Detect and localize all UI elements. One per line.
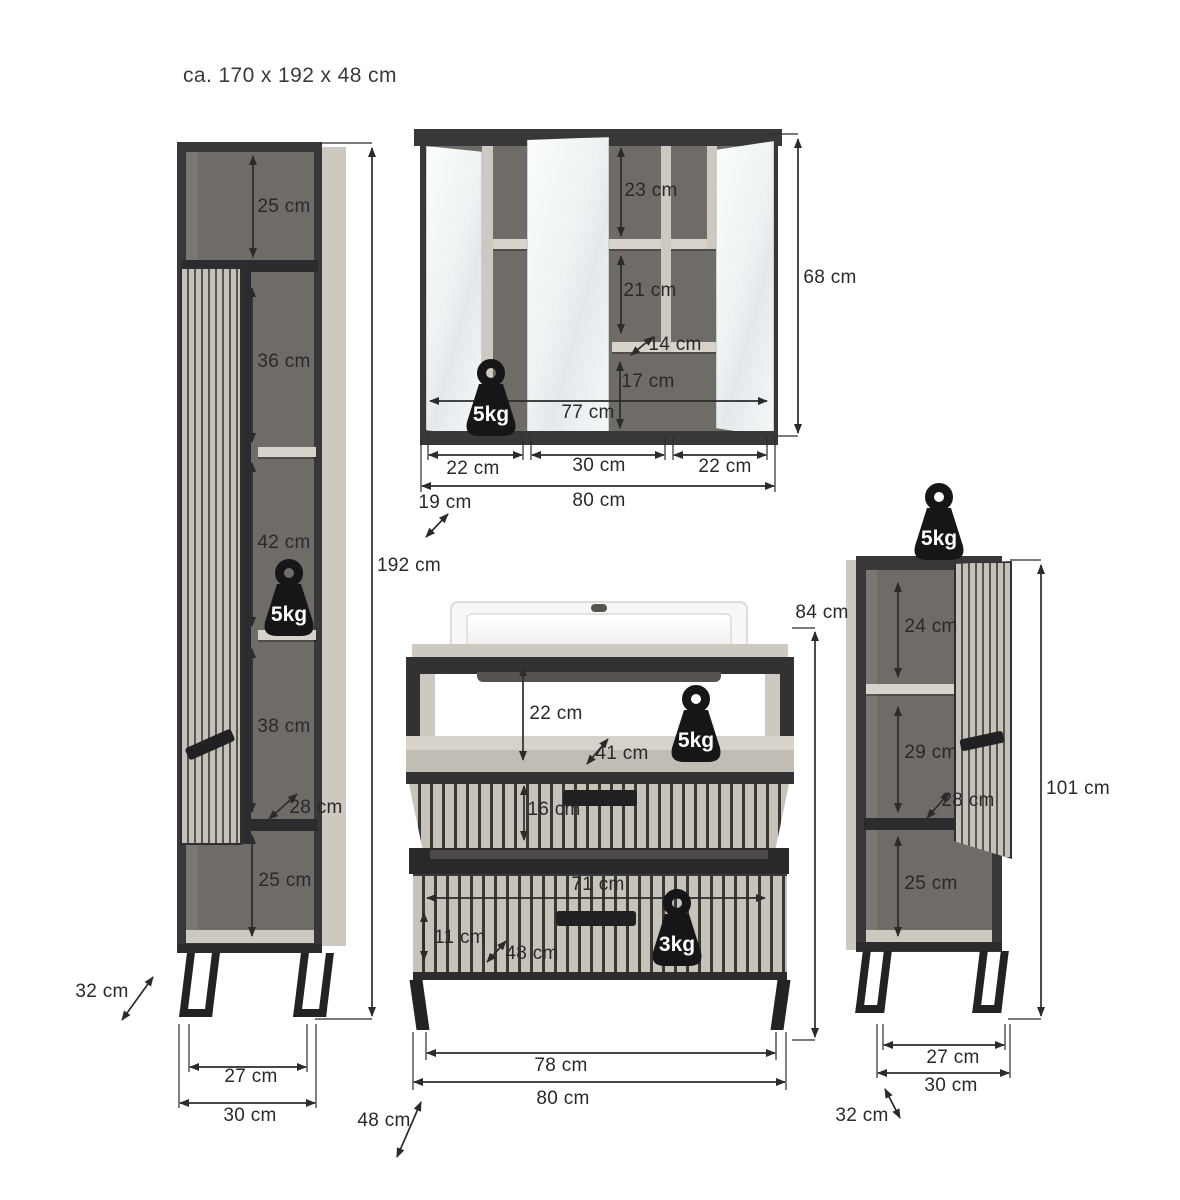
dim-label-mirror-door-left: 22 cm [446,458,499,480]
weight-badge-label: 5kg [921,527,957,550]
weight-ring-icon [668,894,687,913]
dim-label-vanity-drawer2-height: 11 cm [434,927,486,949]
dim-label-mirror-depth: 19 cm [418,492,471,514]
dim-label-tall-inner-depth: 28 cm [289,797,342,819]
dim-label-tall-top-compartment: 25 cm [257,196,310,218]
weight-badge-vanity-drawer: 3kg [644,888,710,966]
dim-label-vanity-height: 84 cm [795,602,848,624]
dim-label-tall-shelf-38: 38 cm [257,716,310,738]
dim-label-mirror-bottom-height: 17 cm [621,371,674,393]
dimension-arrows [0,0,1180,1200]
dim-label-tall-shelf-42: 42 cm [257,532,310,554]
dim-label-side-shelf-24: 24 cm [904,616,957,638]
dim-label-side-feet-width: 27 cm [926,1047,979,1069]
dim-label-side-shelf-29: 29 cm [904,742,957,764]
tall-cabinet-dims [122,143,372,1108]
dim-label-mirror-width: 80 cm [572,490,625,512]
dim-label-vanity-depth: 48 cm [357,1110,410,1132]
weight-badge-tall-cabinet: 5kg [256,558,322,636]
dim-label-side-width: 30 cm [924,1075,977,1097]
weight-ring-icon [687,690,706,709]
dim-label-vanity-drawer-depth: 48 cm [505,943,558,965]
dim-label-vanity-drawer1-height: 16 cm [527,799,580,821]
dim-label-mirror-inner-width: 77 cm [561,402,614,424]
dim-label-mirror-door-right: 22 cm [698,456,751,478]
weight-badge-label: 5kg [271,603,307,626]
weight-badge-mirror-cabinet: 5kg [458,358,524,436]
dim-label-tall-height: 192 cm [377,555,441,577]
dim-label-tall-shelf-36: 36 cm [257,351,310,373]
dim-label-side-bottom-compartment: 25 cm [904,873,957,895]
weight-ring-icon [482,364,501,383]
weight-badge-vanity-shelf: 5kg [663,684,729,762]
dim-label-side-height: 101 cm [1046,778,1110,800]
dim-label-vanity-drawer-width: 71 cm [571,874,624,896]
weight-badge-label: 5kg [473,403,509,426]
dim-label-tall-feet-width: 27 cm [224,1066,277,1088]
dim-label-vanity-open-depth: 41 cm [595,743,648,765]
dim-label-side-depth: 32 cm [835,1105,888,1127]
weight-ring-icon [930,488,949,507]
dim-label-vanity-open-height: 22 cm [529,703,582,725]
page-title: ca. 170 x 192 x 48 cm [183,64,397,88]
dim-label-vanity-feet-width: 78 cm [534,1055,587,1077]
dim-label-mirror-shelf-21: 21 cm [623,280,676,302]
weight-ring-icon [280,564,299,583]
dim-label-mirror-shelf-23: 23 cm [624,180,677,202]
weight-badge-side-cabinet: 5kg [906,482,972,560]
dim-label-tall-width: 30 cm [223,1105,276,1127]
dim-label-side-inner-depth: 28 cm [941,790,994,812]
weight-badge-label: 5kg [678,729,714,752]
dim-label-mirror-inner-depth: 14 cm [648,334,701,356]
bathroom-furniture-dimension-diagram: ca. 170 x 192 x 48 cm [0,0,1180,1200]
side-cabinet-dims [877,560,1041,1118]
dim-label-mirror-door-center: 30 cm [572,455,625,477]
weight-badge-label: 3kg [659,933,695,956]
dim-label-mirror-height: 68 cm [803,267,856,289]
dim-label-vanity-width: 80 cm [536,1088,589,1110]
dim-label-tall-bottom-compartment: 25 cm [258,870,311,892]
dim-label-tall-depth: 32 cm [75,981,128,1003]
